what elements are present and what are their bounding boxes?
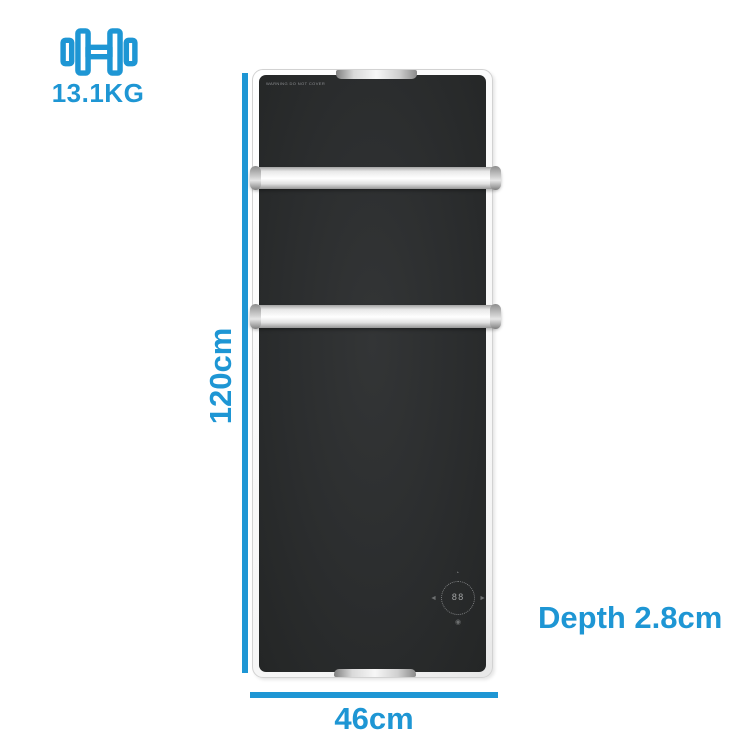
towel-bar-end-cap: [250, 304, 261, 329]
decrease-icon: ◄: [430, 595, 437, 602]
towel-bar-lower: [250, 305, 501, 328]
towel-bar-upper: [250, 167, 501, 189]
width-dimension-line: [250, 692, 498, 698]
depth-label: Depth 2.8cm: [538, 600, 722, 636]
height-dimension-line: [242, 73, 248, 673]
towel-bar-end-cap: [490, 166, 501, 190]
power-icon: ◉: [455, 619, 461, 626]
top-vent: [336, 70, 417, 79]
increase-icon: ►: [479, 595, 486, 602]
control-dial: ◔ ◄ ► ◉ 88: [430, 570, 486, 626]
timer-icon: ◔: [455, 570, 459, 577]
weight-label: 13.1KG: [36, 78, 160, 109]
towel-bar-end-cap: [250, 166, 261, 190]
height-label: 120cm: [203, 328, 239, 425]
temperature-display: 88: [452, 593, 465, 603]
towel-bar-end-cap: [490, 304, 501, 329]
width-label: 46cm: [250, 701, 498, 737]
product-dimensions-image: 13.1KG 120cm WARNING DO NOT COVER ◔ ◄ ► …: [0, 0, 750, 750]
warning-text: WARNING DO NOT COVER: [266, 81, 325, 86]
bottom-vent: [334, 669, 416, 677]
dial-ring: 88: [441, 581, 475, 615]
dumbbell-icon: [60, 27, 138, 77]
